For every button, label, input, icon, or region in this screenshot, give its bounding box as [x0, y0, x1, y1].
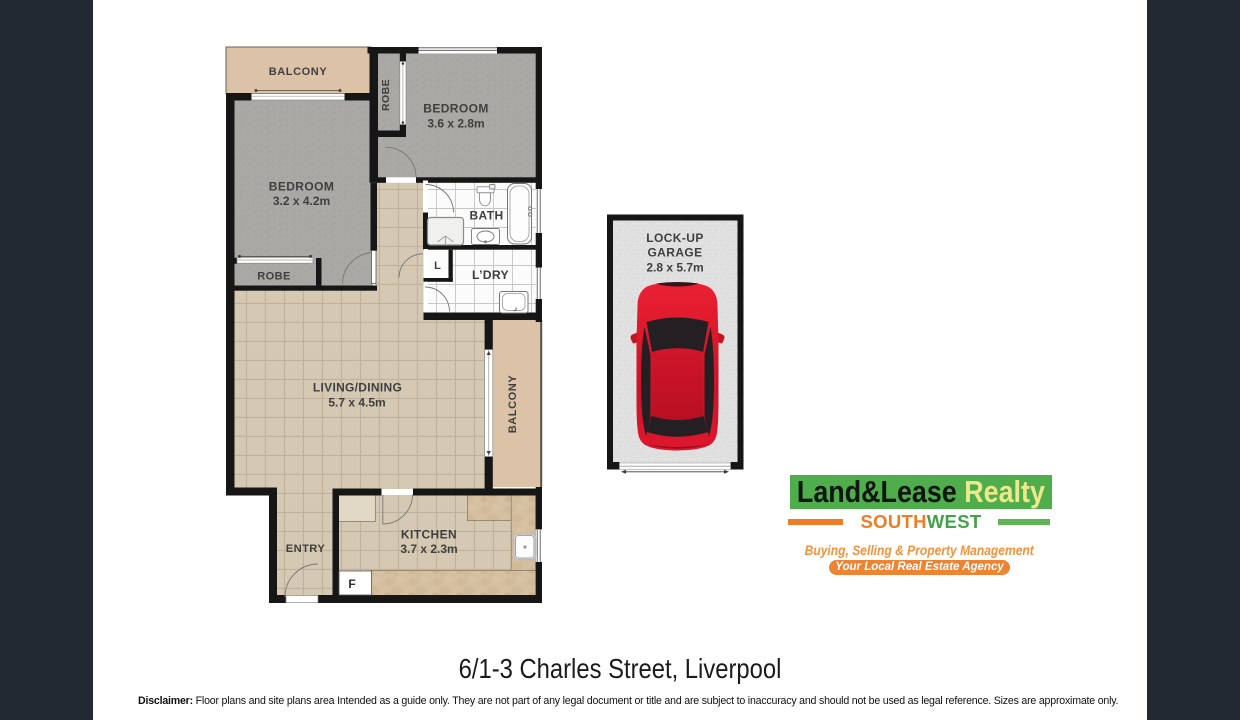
svg-text:BALCONY: BALCONY	[507, 375, 519, 434]
svg-text:ROBE: ROBE	[380, 79, 392, 111]
svg-text:2.8 x 5.7m: 2.8 x 5.7m	[646, 261, 703, 275]
svg-text:GARAGE: GARAGE	[647, 246, 702, 260]
svg-text:5.7 x 4.5m: 5.7 x 4.5m	[328, 396, 385, 410]
svg-text:3.7 x 2.3m: 3.7 x 2.3m	[400, 542, 457, 556]
svg-text:BALCONY: BALCONY	[269, 66, 328, 78]
svg-text:LIVING/DINING: LIVING/DINING	[313, 381, 402, 395]
svg-text:L’DRY: L’DRY	[472, 268, 509, 282]
svg-text:BEDROOM: BEDROOM	[423, 102, 488, 116]
svg-text:L: L	[434, 260, 441, 272]
svg-text:LOCK-UP: LOCK-UP	[646, 231, 703, 245]
svg-text:ENTRY: ENTRY	[286, 543, 326, 555]
svg-text:BEDROOM: BEDROOM	[269, 180, 334, 194]
svg-text:BATH: BATH	[469, 209, 503, 223]
svg-text:F: F	[348, 577, 355, 591]
svg-text:3.6 x 2.8m: 3.6 x 2.8m	[427, 117, 484, 131]
svg-text:ROBE: ROBE	[257, 271, 290, 283]
svg-text:KITCHEN: KITCHEN	[401, 528, 457, 542]
svg-text:3.2 x 4.2m: 3.2 x 4.2m	[273, 194, 330, 208]
